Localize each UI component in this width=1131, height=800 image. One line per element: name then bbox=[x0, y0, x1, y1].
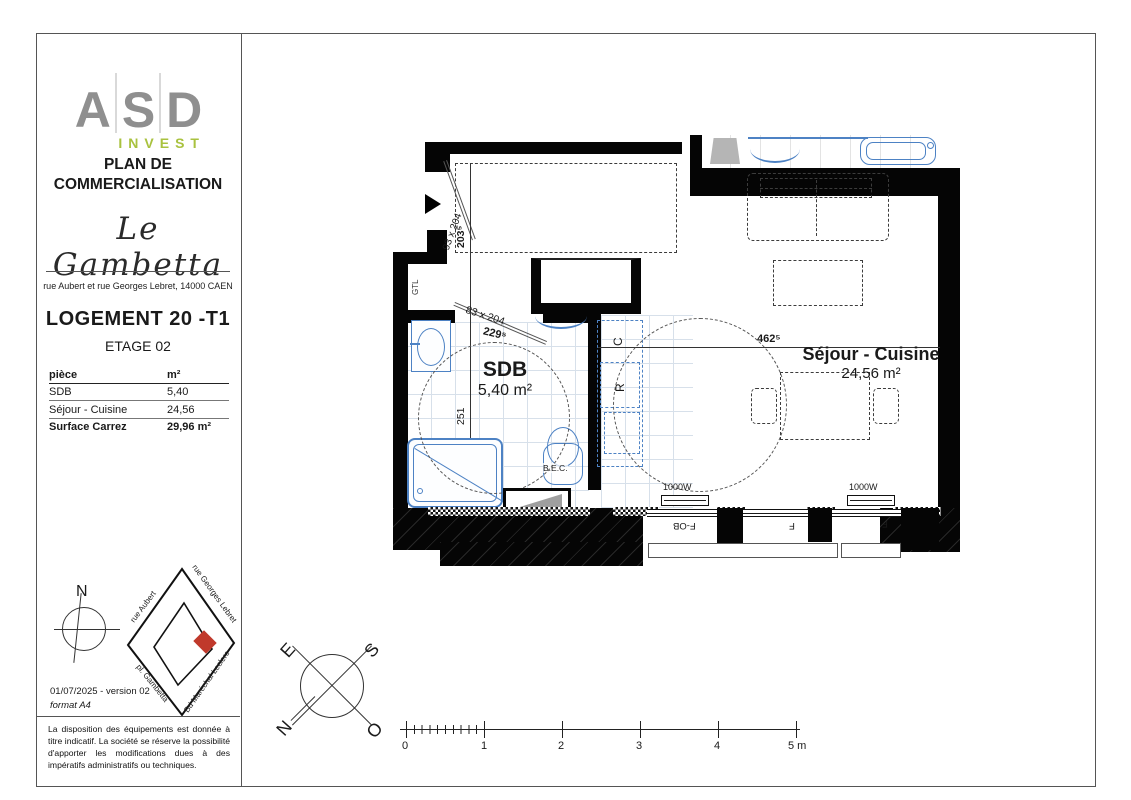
neighbour-tap-dot bbox=[927, 142, 934, 149]
project-name: Le Gambetta bbox=[36, 211, 240, 283]
street-bd-marechal-leclerc: Bd Maréchal Leclerc bbox=[182, 649, 231, 714]
dining-chair-left bbox=[751, 388, 777, 424]
neighbour-strip bbox=[700, 135, 940, 168]
scale-label-1: 1 bbox=[481, 740, 487, 752]
sejour-name: Séjour - Cuisine bbox=[781, 344, 961, 365]
total-label: Surface Carrez bbox=[49, 418, 167, 435]
project-address: rue Aubert et rue Georges Lebret, 14000 … bbox=[36, 281, 240, 291]
floor-label: ETAGE 02 bbox=[36, 338, 240, 354]
kitchen-c-label: C bbox=[611, 337, 625, 346]
neighbour-sink-inner bbox=[866, 142, 926, 160]
table-row: Séjour - Cuisine 24,56 bbox=[49, 401, 229, 419]
logo-letter-a: A bbox=[70, 88, 115, 133]
sejour-area: 24,56 m² bbox=[781, 365, 961, 382]
radiator-line bbox=[850, 500, 892, 501]
logo-letter-d: D bbox=[161, 88, 206, 133]
compass-letter-o: O bbox=[363, 718, 388, 742]
format-text: format A4 bbox=[50, 700, 91, 711]
wall-mass-bottom-left-step bbox=[440, 542, 643, 566]
radiator-1 bbox=[661, 495, 709, 506]
radiator-2-label: 1000W bbox=[849, 482, 878, 492]
site-marker bbox=[194, 631, 216, 653]
area-table: pièce m² SDB 5,40 Séjour - Cuisine 24,56… bbox=[49, 366, 229, 435]
neighbour-column bbox=[690, 135, 702, 168]
compass-letter-e: E bbox=[276, 639, 300, 662]
window-pier-3 bbox=[901, 508, 939, 550]
table-row: SDB 5,40 bbox=[49, 383, 229, 401]
floor-plan: 93 x 204 203⁵ 251 GTL 83 x 204 229⁵ B.E.… bbox=[385, 130, 975, 580]
north-letter: N bbox=[76, 583, 88, 601]
site-map: rue Aubert rue Georges Lebret pl. Gambet… bbox=[118, 561, 244, 723]
scale-bar: 0 1 2 3 4 5 m bbox=[400, 712, 810, 752]
sdb-name: SDB bbox=[435, 358, 575, 382]
window-strip bbox=[647, 509, 939, 517]
room-area: 24,56 bbox=[167, 401, 229, 419]
room-area: 5,40 bbox=[167, 383, 229, 401]
plan-title: PLAN DE COMMERCIALISATION bbox=[42, 155, 234, 195]
balcony-outline-1 bbox=[648, 543, 838, 558]
asd-logo: A S D INVEST bbox=[36, 73, 240, 151]
sdb-sink-tap bbox=[410, 343, 420, 345]
neighbour-worktop bbox=[710, 138, 740, 164]
left-panel: A S D INVEST PLAN DE COMMERCIALISATION L… bbox=[36, 33, 240, 787]
window-label-f1: F bbox=[789, 520, 795, 531]
col-m2: m² bbox=[167, 366, 229, 383]
window-label-f2: F bbox=[882, 518, 888, 529]
street-pl-gambetta: pl. Gambetta bbox=[134, 663, 170, 705]
room-name: SDB bbox=[49, 383, 167, 401]
dining-chair-right bbox=[873, 388, 899, 424]
compass-letter-s: S bbox=[360, 639, 384, 662]
window-glass-line bbox=[647, 513, 939, 514]
col-piece: pièce bbox=[49, 366, 167, 383]
neighbour-counter-line bbox=[748, 137, 868, 139]
sofa bbox=[747, 173, 889, 241]
scale-major-tick bbox=[640, 721, 641, 738]
scale-label-4: 4 bbox=[714, 740, 720, 752]
sill-band-sdb bbox=[428, 507, 590, 516]
sejour-room-label: Séjour - Cuisine 24,56 m² bbox=[781, 344, 961, 382]
balcony-outline-2 bbox=[841, 543, 901, 558]
radiator-1-label: 1000W bbox=[663, 482, 692, 492]
entry-door-marker bbox=[425, 194, 441, 214]
street-rue-aubert: rue Aubert bbox=[128, 589, 158, 625]
area-table-header: pièce m² bbox=[49, 366, 229, 383]
sdb-area: 5,40 m² bbox=[435, 382, 575, 400]
scale-label-2: 2 bbox=[558, 740, 564, 752]
total-area: 29,96 m² bbox=[167, 418, 229, 435]
neighbour-sink bbox=[860, 137, 936, 165]
shower-drain bbox=[417, 488, 423, 494]
entry-closet bbox=[531, 258, 641, 314]
asd-logo-letters: A S D bbox=[36, 73, 240, 133]
radiator-line bbox=[664, 500, 706, 501]
north-line-h bbox=[54, 629, 120, 630]
neighbour-faucet-arc bbox=[750, 149, 800, 163]
version-text: 01/07/2025 - version 02 bbox=[50, 686, 150, 697]
scale-minor-ticks bbox=[406, 725, 485, 734]
coffee-table bbox=[773, 260, 863, 306]
window-pier-2 bbox=[808, 508, 832, 542]
window-label-fob: F-OB bbox=[673, 520, 696, 531]
wall-top-entry bbox=[430, 142, 682, 154]
dining-table bbox=[780, 372, 870, 440]
wall-left bbox=[393, 252, 408, 512]
scale-major-tick bbox=[718, 721, 719, 738]
logo-letter-s: S bbox=[117, 88, 159, 133]
divider-line bbox=[46, 271, 230, 272]
room-name: Séjour - Cuisine bbox=[49, 401, 167, 419]
scale-label-5m: 5 m bbox=[788, 740, 806, 752]
table-total-row: Surface Carrez 29,96 m² bbox=[49, 418, 229, 435]
unit-title: LOGEMENT 20 -T1 bbox=[36, 308, 240, 331]
compass-rose: E S N O bbox=[278, 632, 388, 742]
sdb-room-label: SDB 5,40 m² bbox=[435, 358, 575, 400]
window-pier-1 bbox=[717, 508, 743, 544]
radiator-2 bbox=[847, 495, 895, 506]
gtl-label: GTL bbox=[411, 279, 420, 295]
scale-major-tick bbox=[796, 721, 797, 738]
scale-label-0: 0 bbox=[402, 740, 408, 752]
sofa-seat-split bbox=[816, 180, 817, 236]
loft-dashed-area bbox=[455, 163, 677, 253]
disclaimer-divider bbox=[36, 716, 240, 717]
dim-entry-depth: 203⁵ bbox=[455, 226, 467, 248]
scale-label-3: 3 bbox=[636, 740, 642, 752]
disclaimer-text: La disposition des équipements est donné… bbox=[48, 723, 230, 771]
scale-major-tick bbox=[562, 721, 563, 738]
